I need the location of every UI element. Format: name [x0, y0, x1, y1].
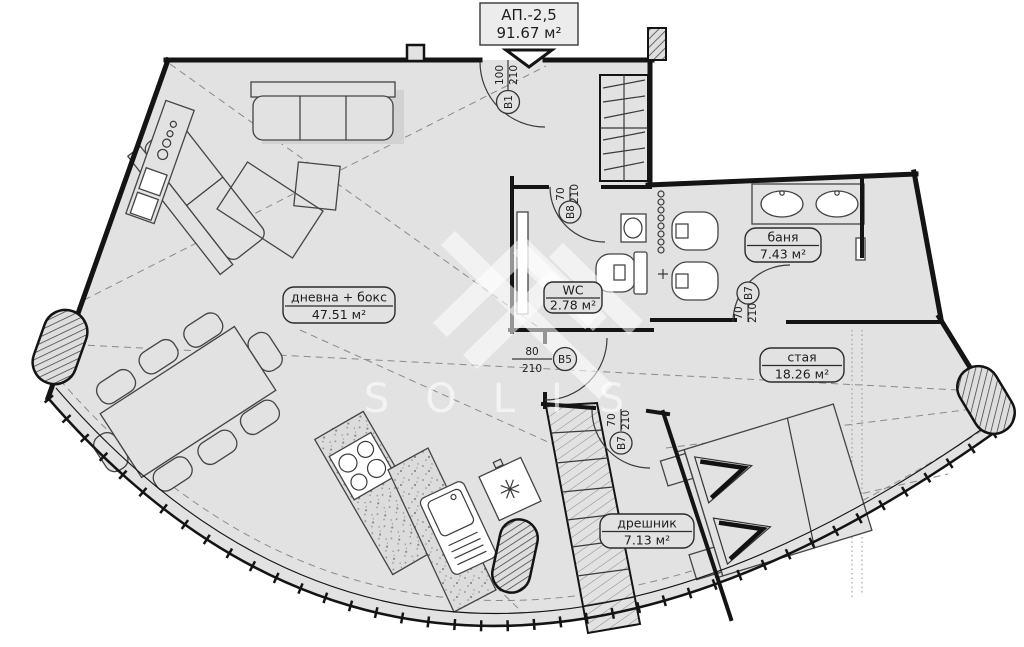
- svg-text:100: 100: [494, 65, 506, 85]
- svg-text:80: 80: [525, 346, 538, 358]
- svg-text:2.78 м²: 2.78 м²: [550, 298, 596, 313]
- svg-text:В7: В7: [616, 436, 628, 450]
- svg-text:В8: В8: [565, 205, 577, 219]
- svg-text:WC: WC: [562, 283, 583, 298]
- svg-text:дрешник: дрешник: [617, 516, 677, 531]
- wc-sink: [621, 214, 646, 242]
- room-label-bath: баня 7.43 м²: [745, 228, 821, 262]
- svg-text:70: 70: [733, 306, 745, 319]
- bath-toilet: [672, 212, 718, 250]
- room-label-bedroom: стая 18.26 м²: [760, 348, 844, 382]
- svg-text:210: 210: [747, 303, 759, 323]
- apartment-area: 91.67 м²: [496, 24, 561, 42]
- room-label-living: дневна + бокс 47.51 м²: [283, 287, 395, 323]
- svg-text:стая: стая: [787, 350, 816, 365]
- bath-vanity: [752, 184, 864, 224]
- column-top-right: [648, 28, 666, 60]
- svg-text:210: 210: [522, 363, 542, 375]
- svg-text:70: 70: [555, 187, 567, 200]
- floor-plan-canvas: SOLIS 100 210 В1 70 210 В8 70 210 В7 80 …: [0, 0, 1024, 647]
- coffee-table: [294, 162, 340, 210]
- svg-text:210: 210: [508, 65, 520, 85]
- apartment-id: АП.-2,5: [501, 6, 557, 24]
- room-label-closet: дрешник 7.13 м²: [600, 514, 694, 548]
- svg-text:210: 210: [620, 410, 632, 430]
- svg-text:47.51 м²: 47.51 м²: [312, 307, 366, 322]
- svg-text:18.26 м²: 18.26 м²: [775, 367, 829, 382]
- bath-bidet: [672, 262, 718, 300]
- svg-text:В7: В7: [743, 286, 755, 300]
- sofa-top: [251, 82, 404, 144]
- roof-notch: [407, 45, 424, 61]
- svg-text:70: 70: [606, 413, 618, 426]
- room-label-wc: WC 2.78 м²: [544, 282, 602, 313]
- svg-text:баня: баня: [767, 230, 798, 245]
- svg-text:7.43 м²: 7.43 м²: [760, 247, 806, 262]
- svg-text:7.13 м²: 7.13 м²: [624, 533, 670, 548]
- svg-text:В5: В5: [558, 354, 572, 366]
- svg-text:дневна + бокс: дневна + бокс: [291, 290, 387, 305]
- svg-text:В1: В1: [503, 95, 515, 109]
- hall-wardrobe: [600, 75, 648, 181]
- apartment-title: АП.-2,5 91.67 м²: [480, 3, 578, 67]
